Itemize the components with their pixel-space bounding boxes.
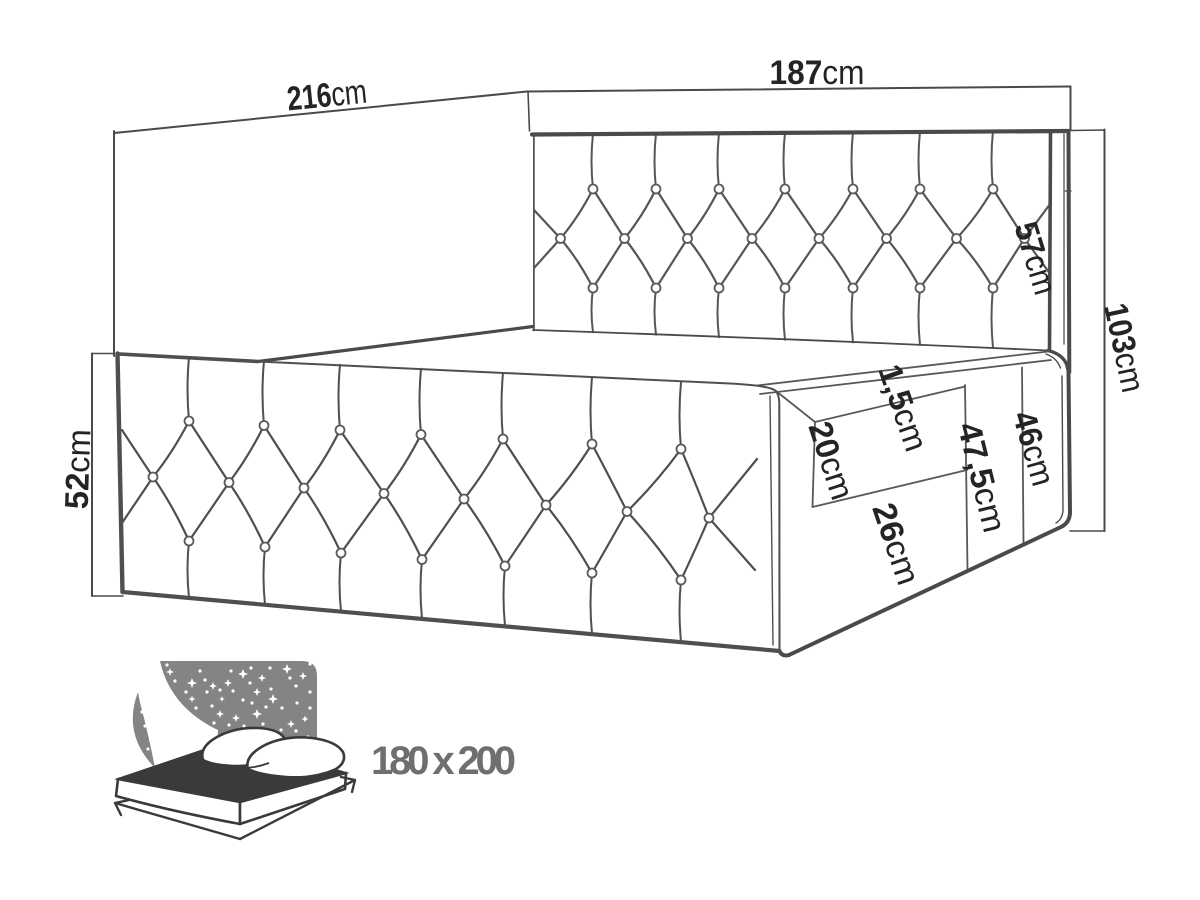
svg-text:187cm: 187cm (770, 54, 865, 92)
svg-text:26cm: 26cm (865, 498, 927, 589)
svg-text:216cm: 216cm (285, 73, 368, 119)
svg-text:46cm: 46cm (1006, 407, 1063, 490)
svg-text:103cm: 103cm (1097, 300, 1152, 396)
svg-text:52cm: 52cm (58, 428, 98, 509)
svg-text:20cm: 20cm (801, 417, 861, 505)
svg-text:57cm: 57cm (1007, 217, 1064, 299)
svg-text:47,5cm: 47,5cm (951, 418, 1014, 536)
svg-text:180 x 200: 180 x 200 (371, 739, 516, 783)
